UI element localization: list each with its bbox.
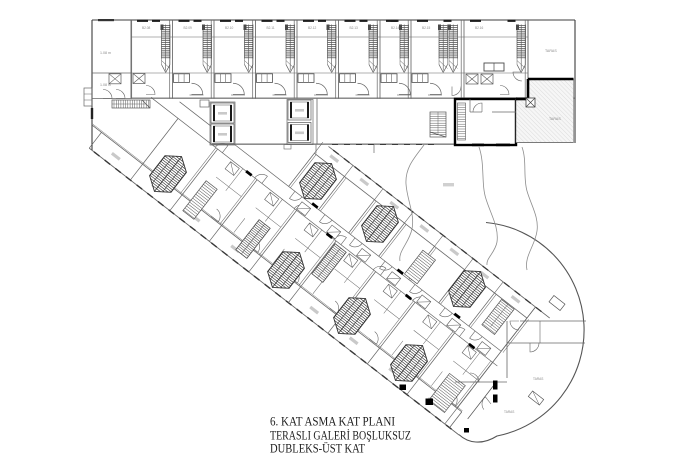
svg-text:B2.09: B2.09 (184, 26, 193, 30)
svg-text:6. KAT ASMA KAT PLANI: 6. KAT ASMA KAT PLANI (270, 415, 395, 429)
svg-text:B2.12: B2.12 (308, 26, 317, 30)
svg-text:1.08 m: 1.08 m (100, 51, 111, 55)
svg-text:B2.16: B2.16 (475, 26, 484, 30)
svg-text:TARAS: TARAS (545, 49, 557, 53)
svg-text:TARAS: TARAS (504, 410, 514, 414)
svg-text:DUBLEKS-ÜST KAT: DUBLEKS-ÜST KAT (270, 442, 365, 456)
svg-text:TARAS: TARAS (533, 377, 543, 381)
svg-text:TARAS: TARAS (549, 117, 561, 121)
svg-text:B2.08: B2.08 (142, 26, 151, 30)
svg-text:B2.13: B2.13 (350, 26, 359, 30)
svg-text:B2.10: B2.10 (225, 26, 234, 30)
svg-text:B2.14: B2.14 (391, 26, 400, 30)
svg-text:1.08 m: 1.08 m (100, 83, 111, 87)
svg-text:B2.15: B2.15 (422, 26, 431, 30)
svg-text:TERASLI GALERİ BOŞLUKSUZ: TERASLI GALERİ BOŞLUKSUZ (270, 429, 411, 443)
svg-text:B2.11: B2.11 (267, 26, 275, 30)
